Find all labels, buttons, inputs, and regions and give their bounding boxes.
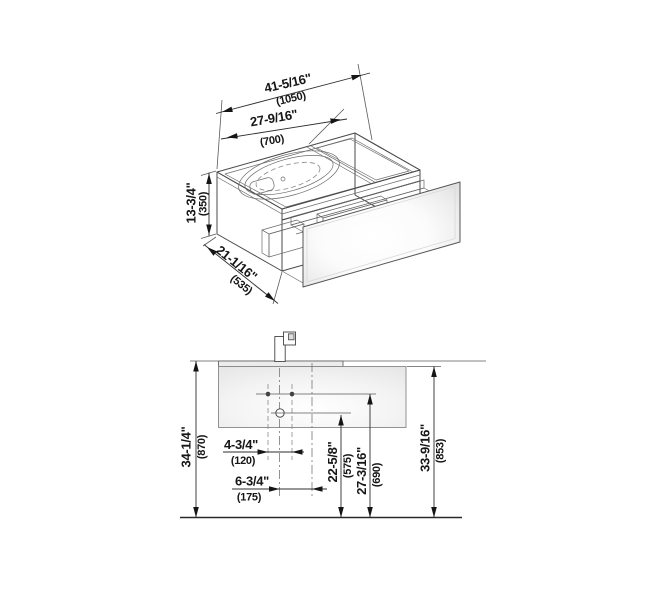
dim-total-height-inch: 34-1/4" <box>178 426 193 467</box>
dim-drain-height: 22-5/8" (575) <box>325 415 354 518</box>
dim-basin-width: 27-9/16" (700) <box>221 106 347 149</box>
vanity-dimension-drawing: 41-5/16" (1050) 27-9/16" (700) 13-3/4" (… <box>0 0 645 601</box>
drawer-divider-tray <box>262 220 304 257</box>
faucet-spout <box>289 334 295 340</box>
dim-basin-inch: 27-9/16" <box>249 106 299 129</box>
dim-hole-spacing-inch: 4-3/4" <box>224 437 258 452</box>
dim-center-offset-inch: 6-3/4" <box>235 473 269 488</box>
isometric-view: 41-5/16" (1050) 27-9/16" (700) 13-3/4" (… <box>183 64 460 304</box>
dim-width-inch: 41-5/16" <box>263 70 313 95</box>
dim-drain-mm: (575) <box>342 453 354 478</box>
dim-center-offset-mm: (175) <box>237 491 262 503</box>
drawer-front-panel <box>303 182 460 287</box>
dim-cabinet-height: 13-3/4" (350) <box>183 171 216 239</box>
dim-height-inch: 13-3/4" <box>183 182 198 223</box>
dim-height-mm: (350) <box>197 191 209 216</box>
dim-hole-spacing-mm: (120) <box>231 455 256 467</box>
dim-depth: 21-1/16" (535) <box>203 237 282 304</box>
dim-drain-inch: 22-5/8" <box>325 441 340 482</box>
dim-basin-mm: (700) <box>259 133 286 149</box>
faucet <box>275 332 296 362</box>
dim-cabinet-top-height: 33-9/16" (853) <box>407 367 446 518</box>
basin-drain <box>281 177 285 181</box>
drawer-underside-edge <box>282 271 303 283</box>
dim-supply-mm: (690) <box>371 462 383 487</box>
dim-total-height: 34-1/4" (870) <box>178 361 207 518</box>
dim-supply-inch: 27-3/16" <box>354 447 369 495</box>
left-edge-line <box>217 177 282 214</box>
dim-total-height-mm: (870) <box>196 434 208 459</box>
dim-cabinet-top-inch: 33-9/16" <box>417 424 432 472</box>
dim-cabinet-top-mm: (853) <box>434 438 446 463</box>
technical-drawing-page: 41-5/16" (1050) 27-9/16" (700) 13-3/4" (… <box>0 0 645 601</box>
elevation-view: 34-1/4" (870) 33-9/16" (853) 27-3/16" (6… <box>178 332 486 518</box>
